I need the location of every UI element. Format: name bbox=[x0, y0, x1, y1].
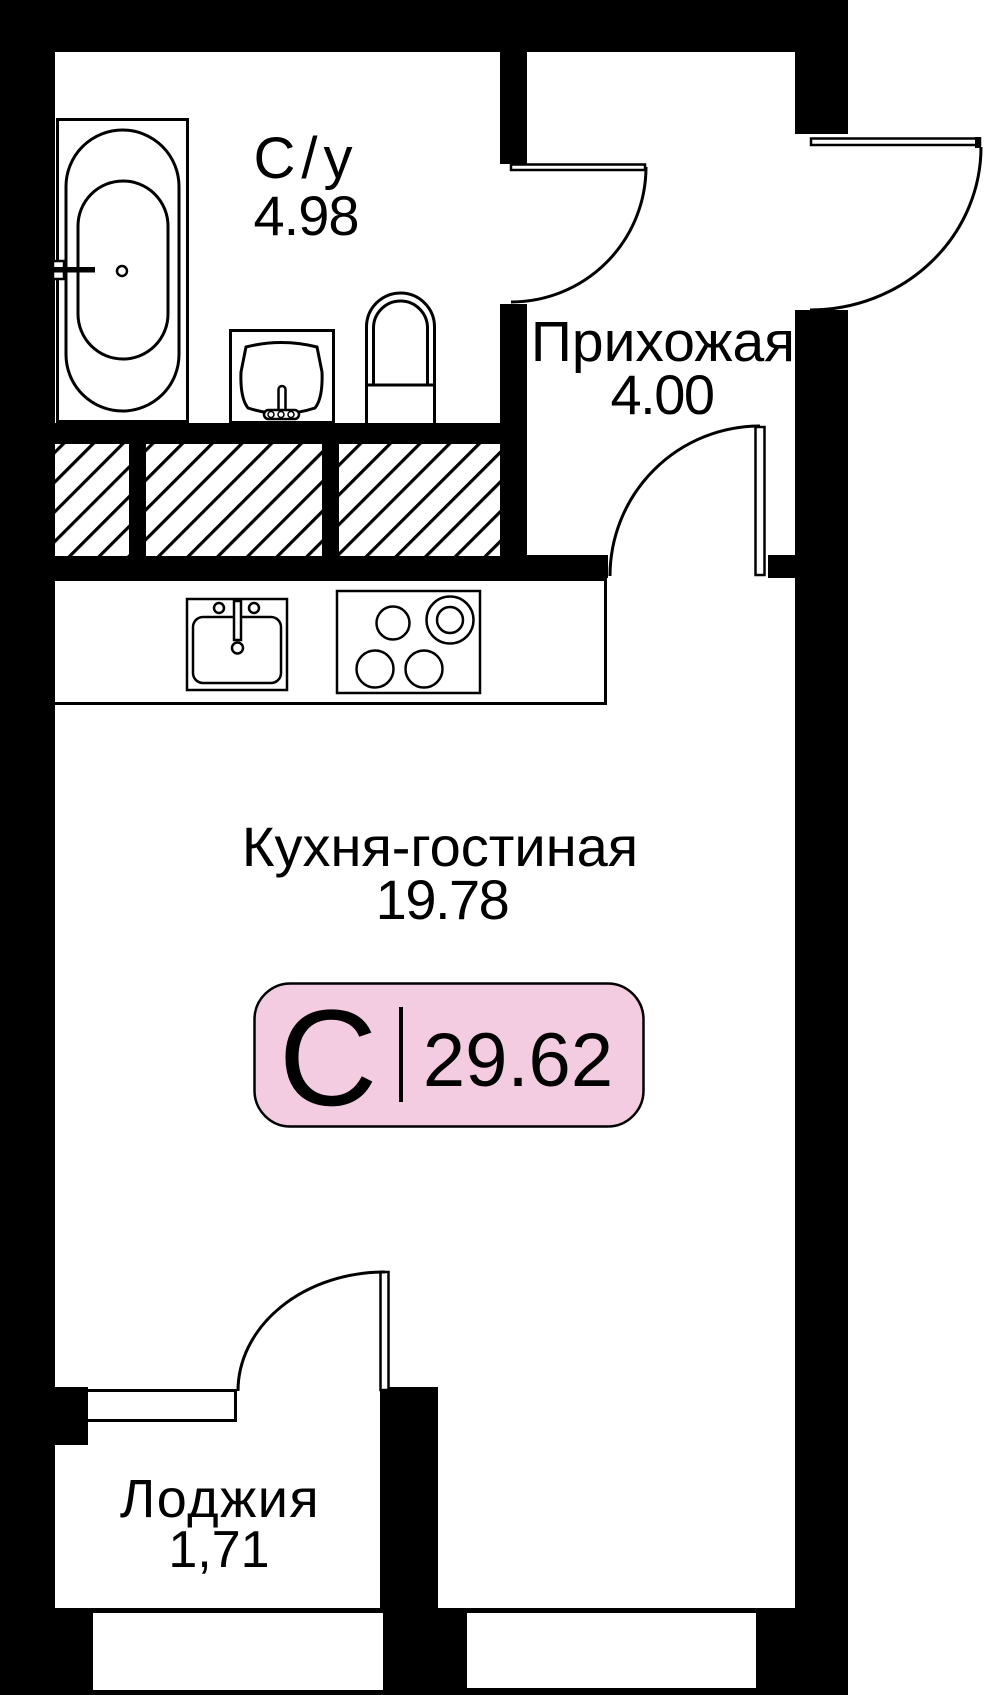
svg-text:29.62: 29.62 bbox=[423, 1018, 613, 1103]
svg-text:19.78: 19.78 bbox=[376, 868, 509, 931]
svg-text:4.98: 4.98 bbox=[254, 184, 359, 247]
svg-text:Лоджия: Лоджия bbox=[120, 1469, 320, 1529]
svg-text:1,71: 1,71 bbox=[168, 1521, 269, 1579]
svg-text:4.00: 4.00 bbox=[611, 363, 714, 426]
svg-text:С: С bbox=[279, 982, 378, 1135]
svg-text:С/у: С/у bbox=[254, 126, 359, 191]
